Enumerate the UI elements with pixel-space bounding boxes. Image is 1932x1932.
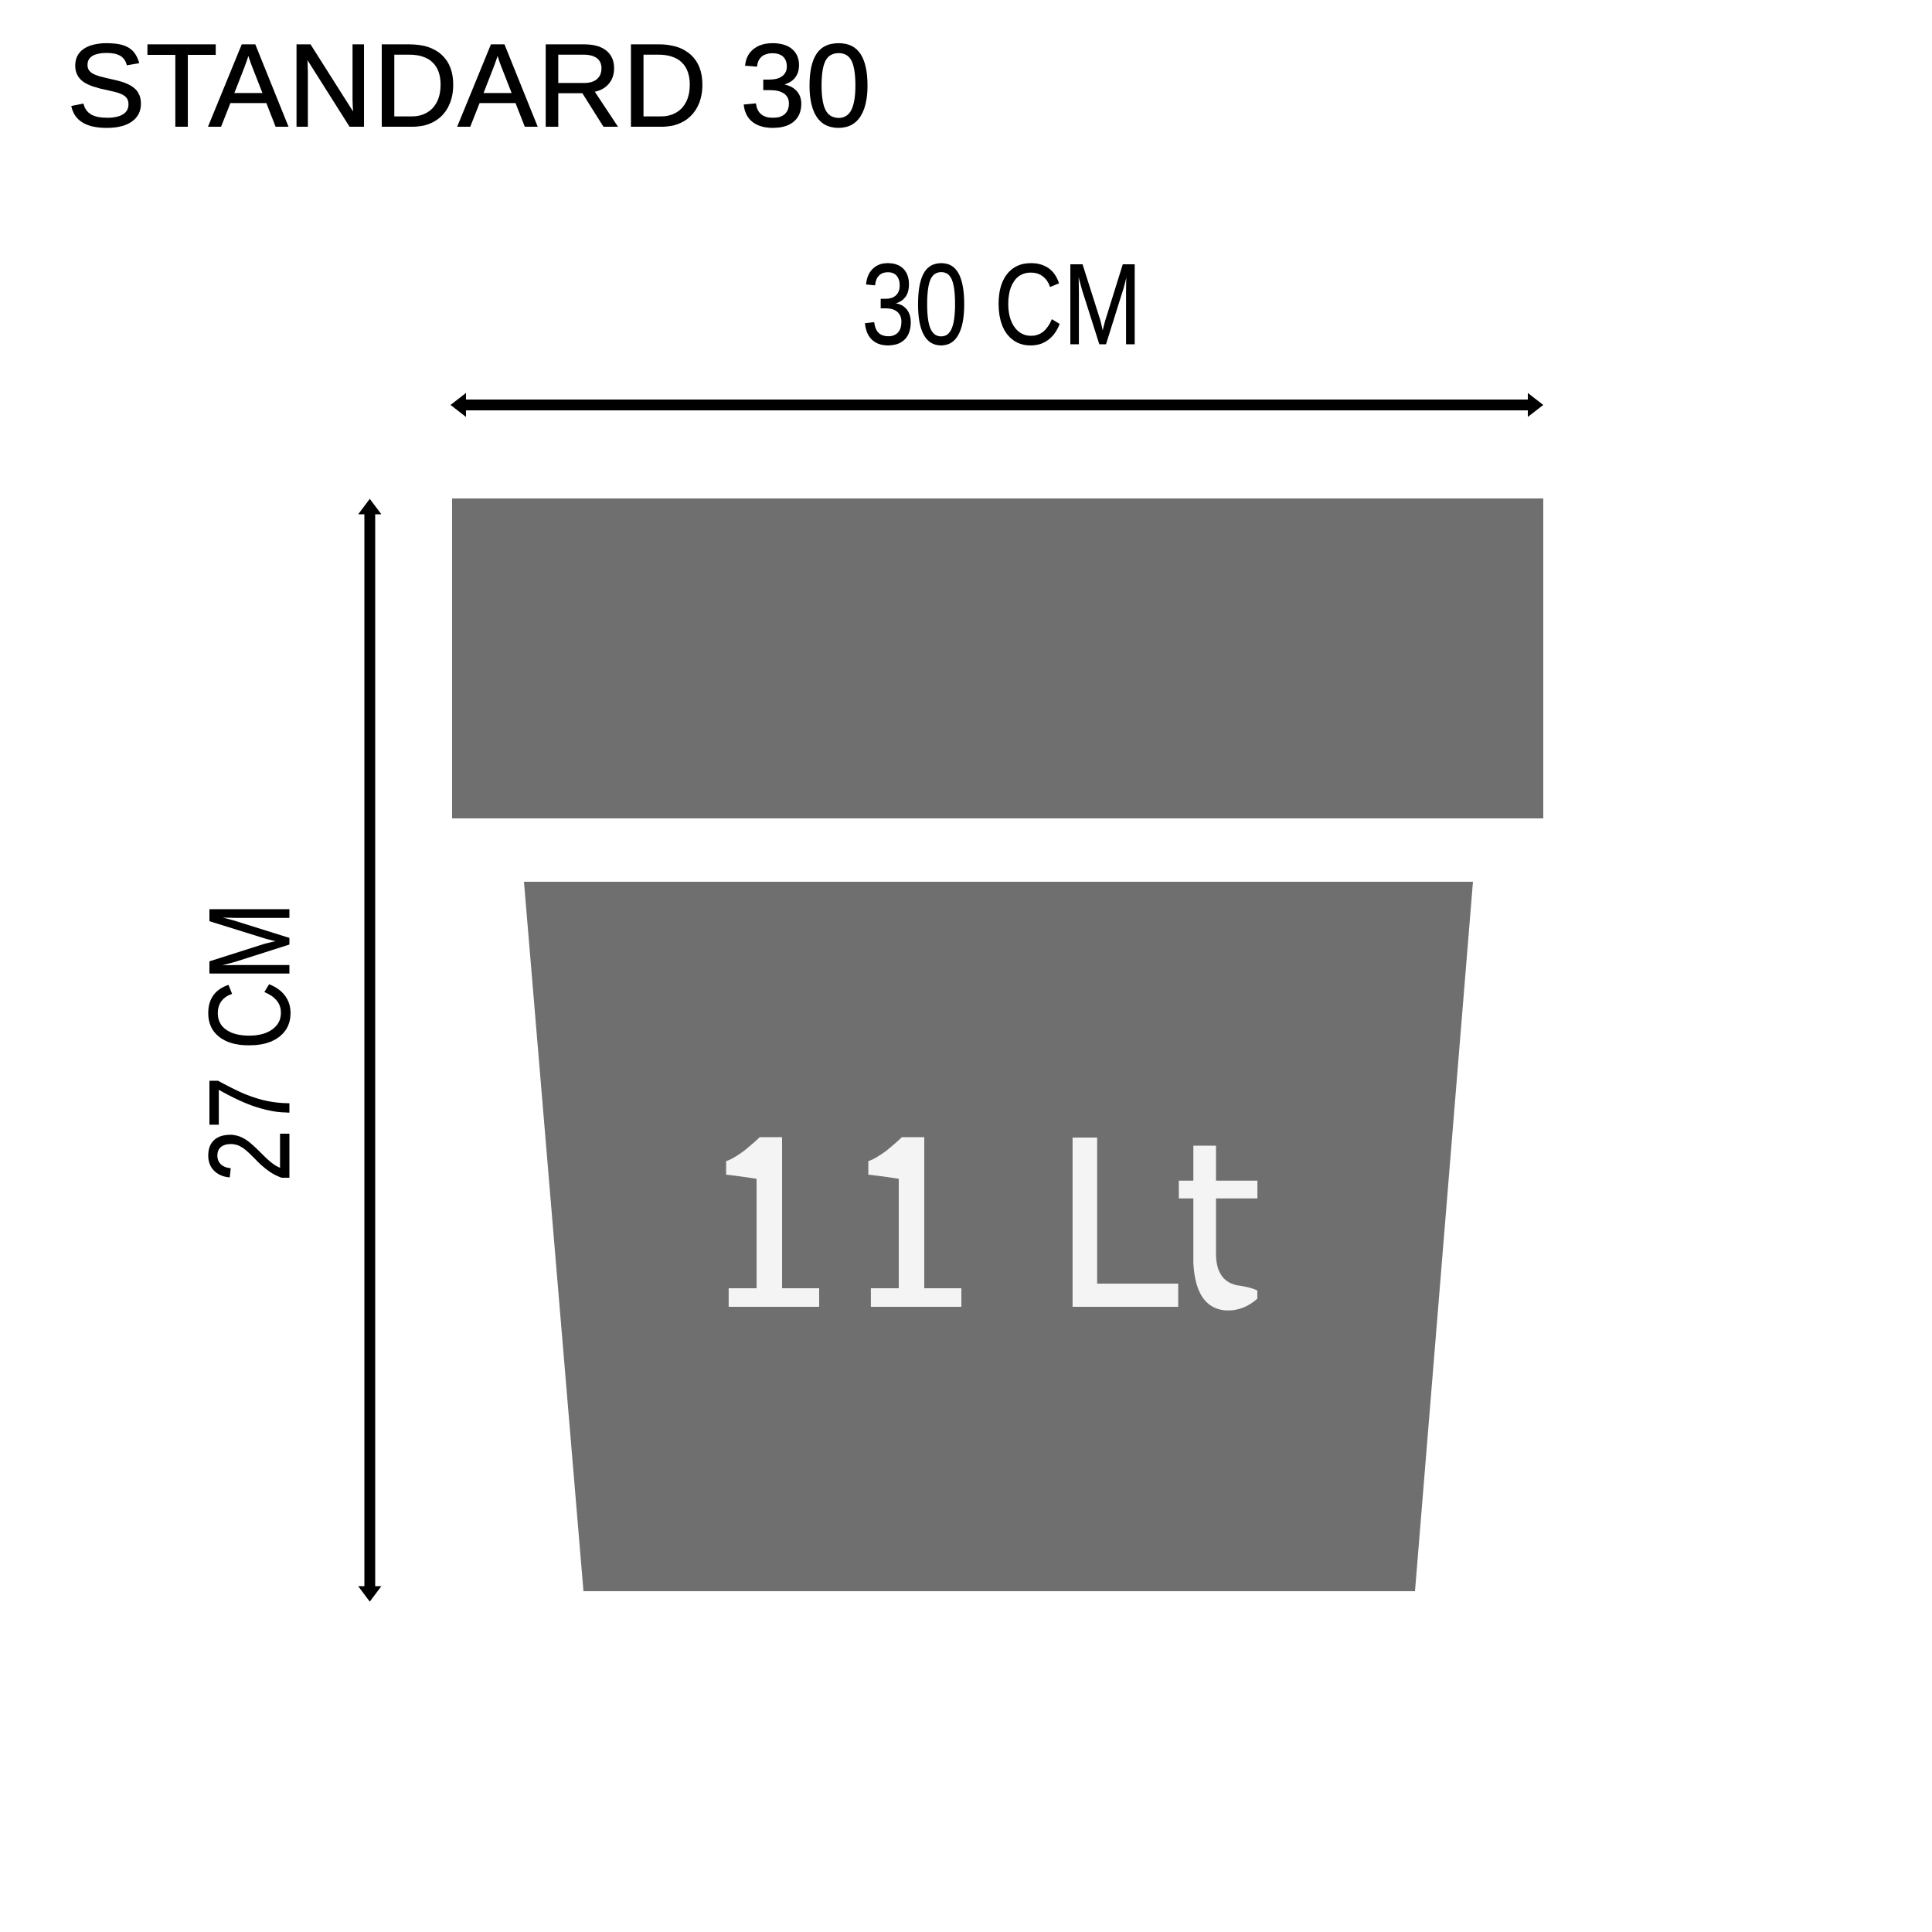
svg-text:27 CM: 27 CM — [185, 902, 314, 1182]
svg-text:STANDARD 30: STANDARD 30 — [67, 20, 872, 151]
svg-text:30 CM: 30 CM — [862, 240, 1142, 369]
